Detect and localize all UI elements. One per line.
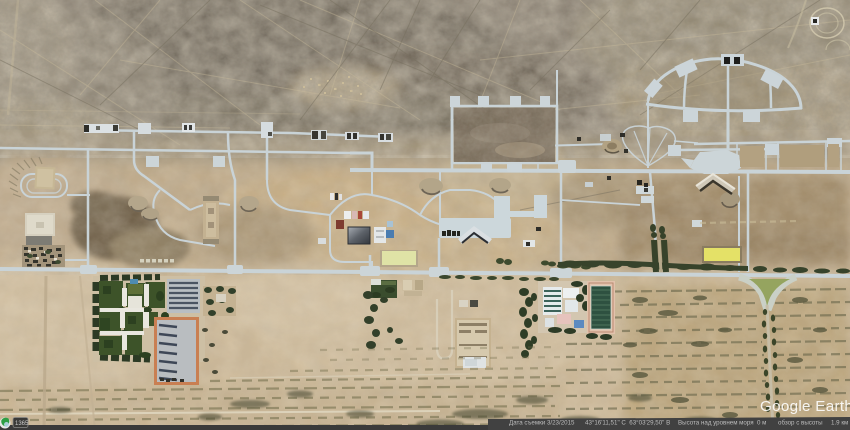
svg-text:Высота над уровнем моря: Высота над уровнем моря: [678, 420, 754, 427]
svg-text:Дата съемки 3/23/2015: Дата съемки 3/23/2015: [509, 420, 575, 427]
svg-text:Google Earth: Google Earth: [760, 398, 850, 415]
svg-text:1.9 км: 1.9 км: [831, 420, 848, 427]
svg-text:обзор с высоты: обзор с высоты: [778, 420, 823, 427]
svg-text:0 м: 0 м: [757, 420, 766, 427]
svg-text:43°16'11,51" С 63°03'29,50" В: 43°16'11,51" С 63°03'29,50" В: [585, 420, 670, 427]
svg-text:1365: 1365: [15, 421, 29, 427]
